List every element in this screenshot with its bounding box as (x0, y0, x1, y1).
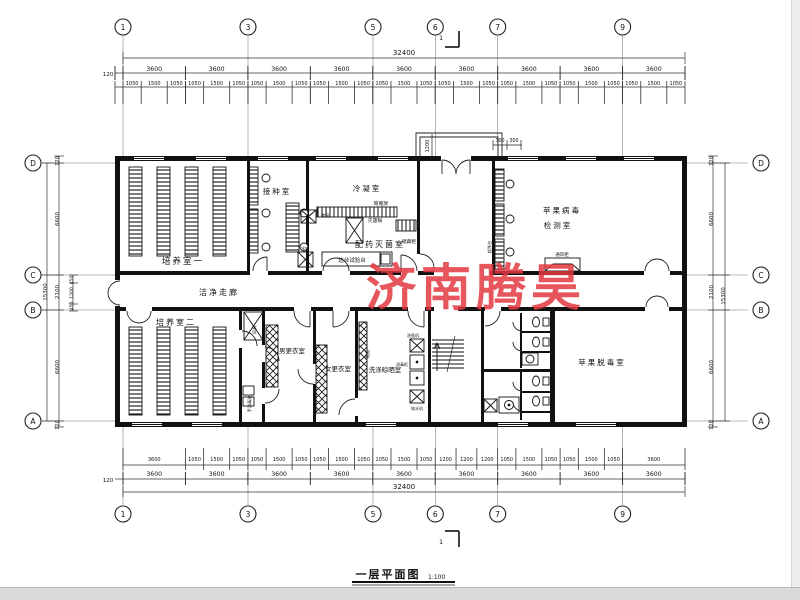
dim-label: 1200 (460, 457, 473, 463)
page-right-strip (791, 0, 800, 600)
grid-bubble-label: 9 (620, 510, 625, 519)
dim-label: 1050 (545, 457, 558, 463)
equipment-label-bottle-rack: 晾瓶架 (374, 200, 389, 207)
dim-label: 1500 (460, 81, 473, 87)
grid-bubble-label: 5 (371, 510, 376, 519)
grid-bubble-label: 6 (433, 510, 438, 519)
dim-label: 300 (495, 138, 504, 144)
grid-bubble-label: A (758, 417, 764, 426)
dim-label: 1050 (188, 81, 201, 87)
title-block: 一层平面图 1:100 (352, 568, 455, 585)
dim-label: 3600 (646, 471, 662, 478)
dim-label: 15300 (43, 283, 49, 301)
equipment-label-water-purifier: 纯水机 (411, 405, 423, 411)
room-label-virus-test-line2: 检测室 (544, 220, 573, 230)
dim-label: 1500 (585, 81, 598, 87)
dim-label: 1050 (295, 81, 308, 87)
dim-label: 1200 (69, 287, 75, 299)
grid-bubble-label: C (30, 271, 35, 280)
dim-label: 1050 (357, 457, 370, 463)
dim-label: 3600 (271, 66, 287, 73)
equipment-label-fridge: 冰箱 (301, 245, 309, 252)
dim-label: 1050 (126, 81, 139, 87)
dim-label: 3600 (146, 66, 162, 73)
dimensions-top: 3240036003600360036003600360036003600360… (103, 49, 685, 104)
dim-label: 1200 (481, 457, 494, 463)
dim-label: 1500 (210, 457, 223, 463)
dim-label: 3600 (396, 66, 412, 73)
dim-label: 1050 (420, 457, 433, 463)
dim-label: 450 (69, 302, 75, 311)
room-label-detox: 苹果脱毒室 (578, 357, 626, 367)
equipment-label-disinfect-cabinet: 消毒柜 (396, 361, 408, 367)
dim-label: 15300 (721, 287, 727, 305)
dim-label: 1050 (500, 81, 513, 87)
grid-bubble-label: D (30, 159, 36, 168)
grid-bubble-label: 7 (495, 510, 500, 519)
dim-label: 1050 (500, 457, 513, 463)
dim-label: 1500 (585, 457, 598, 463)
grid-bubble-label: 5 (371, 23, 376, 32)
grid-bubble-label: 1 (121, 23, 126, 32)
grid-bubble-label: A (30, 417, 36, 426)
dim-label: 120 (55, 156, 61, 166)
dim-label: 1050 (357, 81, 370, 87)
dim-label: 6600 (55, 360, 61, 374)
dim-label: 6600 (709, 212, 715, 226)
dim-label: 1200 (425, 140, 431, 153)
dim-label: 1050 (545, 81, 558, 87)
equipment-label-pass-window: 递窗 (321, 212, 329, 219)
fixtures-layer (129, 167, 580, 415)
room-label-women-changing: 女更衣室 (325, 364, 352, 373)
dim-label: 1500 (335, 81, 348, 87)
dim-label: 32400 (393, 483, 415, 491)
page-bottom-strip (0, 587, 800, 600)
dim-label: 3600 (334, 471, 350, 478)
grid-bubble-label: 6 (433, 23, 438, 32)
dim-label: 1500 (273, 457, 286, 463)
drawing-scale: 1:100 (428, 574, 445, 581)
dim-label: 1050 (670, 81, 683, 87)
grid-bubble-label: D (758, 159, 764, 168)
equipment-label-hand-wash: 手消毒池 (246, 395, 253, 413)
grid-bubble-label: 3 (246, 23, 251, 32)
dim-label: 1500 (210, 81, 223, 87)
dim-label: 1500 (273, 81, 286, 87)
room-label-virus-test-line1: 苹果病毒 (543, 205, 581, 215)
equipment-label-side-bench: 边台试验台 (338, 256, 366, 264)
side-dimension-labels: 15300 120 6600 2100 6600 120 450 1200 45… (43, 138, 727, 430)
dim-label: 1050 (563, 81, 576, 87)
room-label-condensation: 冷凝室 (353, 183, 382, 193)
dim-label: 1050 (420, 81, 433, 87)
room-label-culture1: 培养室一 (162, 256, 204, 267)
equipment-label-shoe-cabinet: 鞋柜 (364, 350, 371, 358)
dim-label: 1050 (170, 81, 183, 87)
room-label-sterilization: 配药灭菌室 (355, 239, 405, 249)
dim-label: 1050 (607, 81, 620, 87)
dim-label: 3600 (396, 471, 412, 478)
dimensions-sides (42, 156, 730, 427)
equipment-label-fume-hood: 通风柜 (555, 251, 569, 258)
dim-label: 1050 (625, 81, 638, 87)
grid-bubbles: 113355667799DDCCBBAA (25, 19, 769, 522)
grid-lines-layer (41, 36, 748, 505)
dim-label: 1500 (523, 81, 536, 87)
dim-label: 3600 (583, 471, 599, 478)
dim-label: 1050 (232, 81, 245, 87)
equipment-label-sterilizer: 灭菌锅 (368, 217, 383, 224)
dim-label: 2100 (55, 285, 61, 299)
dim-label: 3600 (521, 66, 537, 73)
floor-plan-drawing: 3240036003600360036003600360036003600360… (0, 0, 800, 600)
grid-bubble-label: 7 (495, 23, 500, 32)
equipment-label-bottle-washer: 洗瓶机 (407, 332, 419, 338)
dim-label: 120 (709, 420, 715, 430)
dim-label: 1500 (647, 81, 660, 87)
dim-label: 1050 (295, 457, 308, 463)
dim-label: 2100 (709, 285, 715, 299)
room-label-clean-corridor: 洁净走廊 (199, 287, 239, 297)
grid-bubble-label: 3 (246, 510, 251, 519)
dim-label: 1050 (482, 81, 495, 87)
dim-label: 1500 (398, 457, 411, 463)
dim-label: 300 (509, 138, 518, 144)
dim-label: 3600 (271, 471, 287, 478)
dim-label: 120 (103, 478, 114, 484)
dim-label: 120 (103, 72, 114, 78)
dim-label: 32400 (393, 49, 415, 57)
dim-label: 120 (55, 420, 61, 430)
dim-label: 6600 (55, 212, 61, 226)
dimensions-bottom: 3600105015001050105015001050105015001050… (103, 448, 685, 497)
grid-bubble-label: B (30, 306, 35, 315)
dim-label: 1050 (251, 457, 264, 463)
dim-label: 1050 (376, 457, 389, 463)
dim-label: 1050 (376, 81, 389, 87)
dim-label: 3600 (647, 457, 660, 463)
entrance-canopy (416, 133, 522, 157)
dim-label: 6600 (709, 360, 715, 374)
dim-label: 3600 (459, 471, 475, 478)
dim-label: 1050 (607, 457, 620, 463)
room-label-culture2: 培养室二 (156, 317, 196, 327)
dim-label: 3600 (334, 66, 350, 73)
dim-label: 450 (69, 276, 75, 285)
room-label-men-changing: 男更衣室 (279, 346, 306, 355)
dim-label: 1500 (335, 457, 348, 463)
dim-label: 3600 (146, 471, 162, 478)
dim-label: 1050 (313, 81, 326, 87)
dim-label: 3600 (209, 66, 225, 73)
grid-bubble-label: 1 (121, 510, 126, 519)
equipment-label-storage-cabinet: 储藏柜 (402, 238, 417, 245)
dim-label: 1500 (148, 81, 161, 87)
dim-label: 1050 (563, 457, 576, 463)
grid-bubble-label: B (758, 306, 763, 315)
dim-label: 3600 (646, 66, 662, 73)
grid-bubble-label: 9 (620, 23, 625, 32)
room-label-inoculation: 接种室 (263, 186, 292, 196)
dim-label: 1050 (251, 81, 264, 87)
grid-bubble-label: C (758, 271, 763, 280)
dim-label: 1050 (438, 81, 451, 87)
equipment-label-clean-bench: 超净台 (486, 241, 493, 254)
dim-label: 3600 (209, 471, 225, 478)
dim-label: 3600 (459, 66, 475, 73)
dim-label: 3600 (583, 66, 599, 73)
dim-label: 3600 (521, 471, 537, 478)
dim-label: 1500 (523, 457, 536, 463)
equipment-label-air-shower: 风淋 (251, 325, 258, 334)
dim-label: 1500 (398, 81, 411, 87)
drawing-title: 一层平面图 (356, 568, 421, 581)
dim-label: 1050 (232, 457, 245, 463)
dim-label: 120 (709, 156, 715, 166)
dim-label: 1050 (188, 457, 201, 463)
floor-plan-page: 3240036003600360036003600360036003600360… (0, 0, 800, 600)
section-marker-label-top: 1 (439, 34, 443, 42)
dim-label: 1050 (313, 457, 326, 463)
dim-label: 1200 (439, 457, 452, 463)
section-marker-label-bottom: 1 (439, 538, 443, 546)
dim-label: 3600 (148, 457, 161, 463)
